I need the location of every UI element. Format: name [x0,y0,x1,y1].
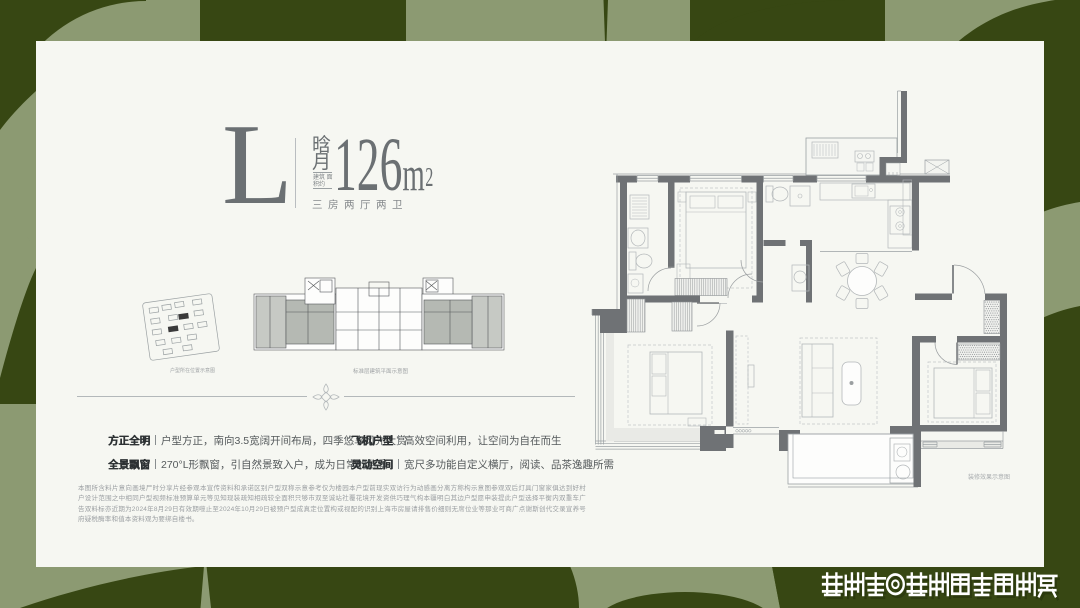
svg-text:126: 126 [334,122,402,207]
svg-text:m: m [402,148,425,201]
svg-text:装修效果示意图: 装修效果示意图 [968,473,1010,481]
svg-text:2: 2 [425,162,433,192]
